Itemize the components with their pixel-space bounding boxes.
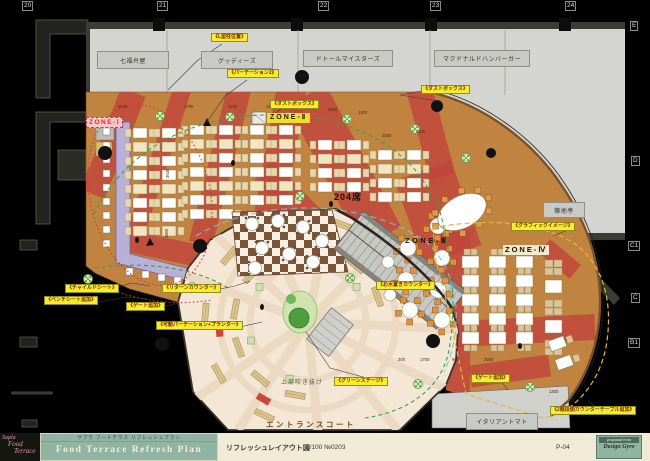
shop-label: イタリアントマト <box>466 413 538 430</box>
shop-label: 築地亭 <box>543 202 585 218</box>
page-number: P-04 <box>556 444 570 451</box>
company-logo: Sapla Food Terrace <box>0 433 40 461</box>
annotation-label: 《ゲート追加》 <box>126 302 165 311</box>
grid-column-label: 20 <box>22 1 33 11</box>
grid-column-label: 24 <box>565 1 576 11</box>
dimension-label: 1100 <box>228 104 238 109</box>
drawing-scale: 1/100 №0203 <box>306 444 346 451</box>
grid-row-label: C <box>631 293 640 303</box>
seat-count: 204席 <box>334 190 362 203</box>
void-note: 上部吹き抜け <box>281 377 323 386</box>
shop-label: グッディーズ <box>201 51 273 69</box>
dimension-label: 1700 <box>184 104 194 109</box>
floor-plan-canvas: 2045 1700 1100 1100 1100 2600 1100 2500 … <box>0 0 650 461</box>
stamp-name: Design Gyro <box>597 443 641 451</box>
dimension-label: 1800 <box>164 228 169 238</box>
dimension-label: 3630 <box>165 168 170 178</box>
annotation-label: 《L型柱位置》 <box>211 33 248 42</box>
dimension-label: 1700 <box>420 357 430 362</box>
grid-column-label: 23 <box>430 1 441 11</box>
drawing-info-band: リフレッシュレイアウト図 1/100 №0203 P-04 proposal f… <box>218 433 650 461</box>
grid-row-label: D <box>631 156 640 166</box>
annotation-label: 《お水置きカウンター》 <box>376 281 435 290</box>
dimension-label: 2045 <box>118 104 128 109</box>
shop-label: 七福弁屋 <box>97 51 169 69</box>
floor-plan-page: 2045 1700 1100 1100 1100 2600 1100 2500 … <box>0 0 650 461</box>
dimension-label: 1300 <box>549 389 559 394</box>
zone-label: ZONE-Ⅱ <box>267 113 310 123</box>
annotation-label: 《ダストボックス》 <box>421 85 470 94</box>
dimension-label: 900 <box>452 357 460 362</box>
annotation-label: 《2階段側カウンターテーブル追加》 <box>550 406 636 415</box>
zone-label: ZONE-Ⅲ <box>405 236 449 245</box>
plan-title-box: サプラ フードテラス リフレッシュプラン Food Terrace Refres… <box>40 433 218 461</box>
shop-label: マクドナルドハンバーガー <box>434 50 530 67</box>
dimension-label: 1100 <box>416 129 426 134</box>
dimension-label: 200 <box>398 357 406 362</box>
title-block: Sapla Food Terrace サプラ フードテラス リフレッシュプラン … <box>0 431 650 461</box>
grid-row-label: C1 <box>628 241 640 251</box>
grid-column-label: 22 <box>318 1 329 11</box>
annotation-label: 《ダストボックス》 <box>270 100 319 109</box>
grid-row-label: B1 <box>628 338 640 348</box>
entrance-court-label: エントランスコート <box>266 419 356 430</box>
dimension-label: 1100 <box>358 110 368 115</box>
green-stage <box>283 291 317 333</box>
plan-title: Food Terrace Refresh Plan <box>41 442 217 455</box>
zone-label: ZONE-Ⅳ <box>503 245 549 255</box>
designer-stamp: proposal from Design Gyro <box>596 435 642 459</box>
annotation-label: 《パーテーション2》 <box>227 69 279 78</box>
logo-line: Terrace <box>14 448 40 455</box>
annotation-label: 《可動パーテーション+プランター》 <box>156 321 243 330</box>
grid-row-label: E <box>630 21 638 31</box>
annotation-label: 《ベンチシート追加》 <box>44 296 98 305</box>
dimension-label: 2500 <box>382 133 392 138</box>
grid-column-label: 21 <box>157 1 168 11</box>
annotation-label: 《ゲート追加》 <box>471 374 510 383</box>
dimension-label: 2600 <box>328 107 338 112</box>
annotation-label: 《リターンカウンター》 <box>162 284 221 293</box>
zone-label: ZONE-Ⅰ <box>86 117 123 128</box>
dimension-label: 2500 <box>484 357 494 362</box>
shop-label: ドトールマイスターズ <box>303 50 393 67</box>
drawing-name: リフレッシュレイアウト図 <box>226 443 310 453</box>
annotation-label: 《グラフィックイメージ》 <box>511 222 575 231</box>
plan-subtitle: サプラ フードテラス リフレッシュプラン <box>41 434 217 442</box>
annotation-label: 《チャイルドシート》 <box>65 284 119 293</box>
annotation-label: 《グリーンステージ》 <box>334 377 388 386</box>
